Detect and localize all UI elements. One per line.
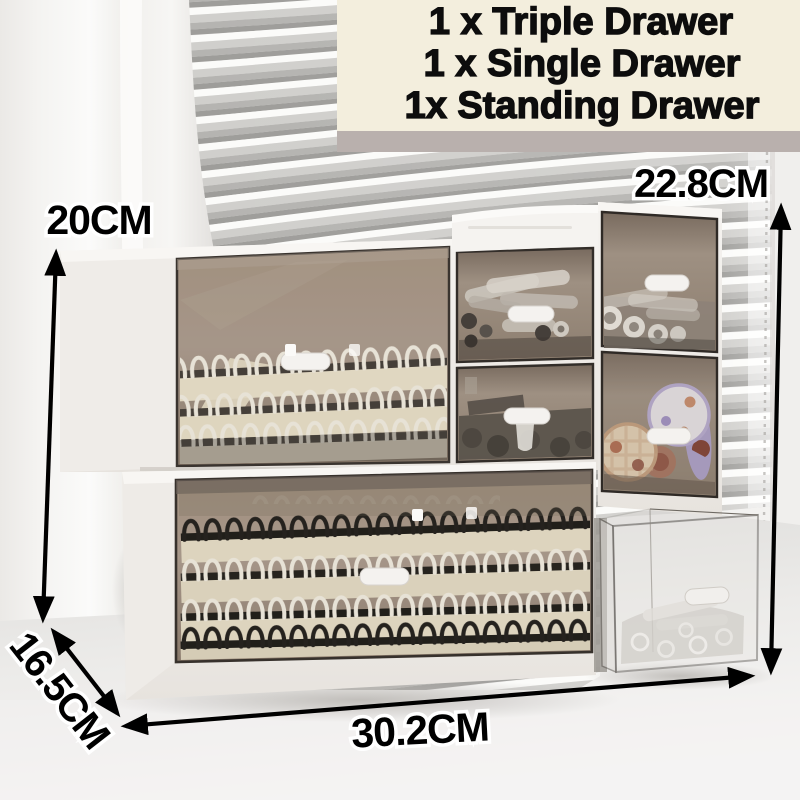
svg-text:1 x Triple Drawer: 1 x Triple Drawer (429, 1, 733, 43)
svg-text:22.8CM: 22.8CM (634, 162, 768, 206)
svg-text:1 x Single Drawer: 1 x Single Drawer (424, 43, 741, 85)
svg-text:20CM: 20CM (46, 197, 151, 243)
svg-text:1x Standing Drawer: 1x Standing Drawer (405, 85, 760, 127)
svg-text:30.2CM: 30.2CM (350, 703, 490, 756)
